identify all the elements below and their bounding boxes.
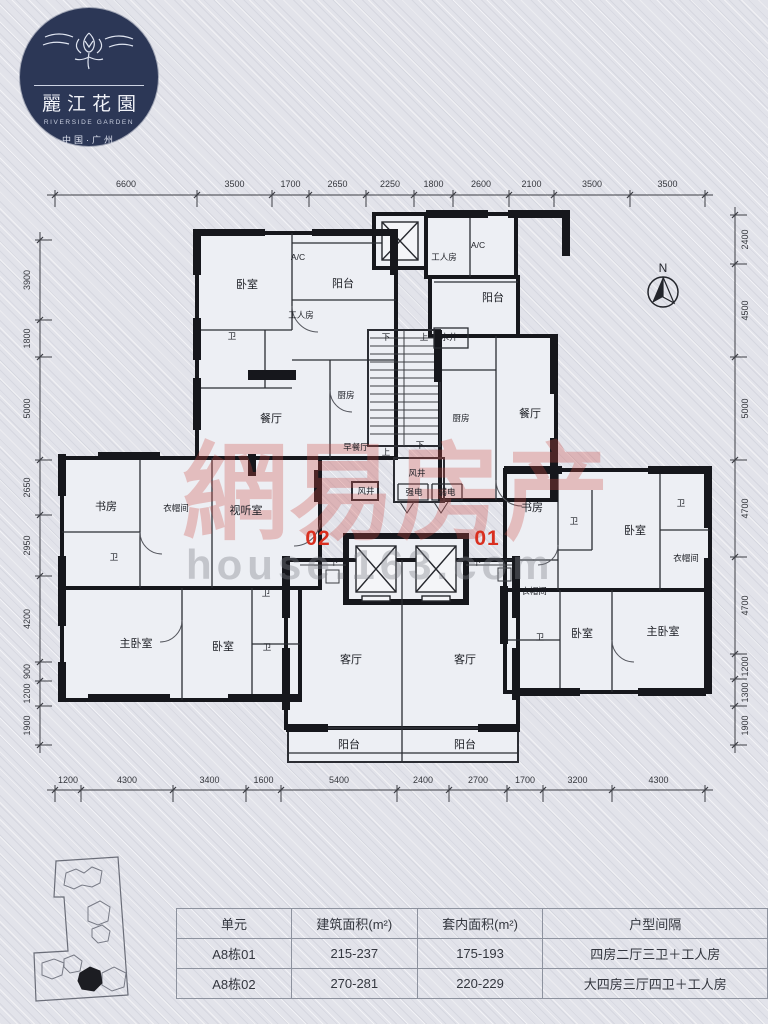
dimension-value: 2250 <box>380 179 400 189</box>
compass-icon <box>648 277 678 307</box>
table-cell: 215-237 <box>291 939 417 969</box>
logo-title-cn: 麗江花園 <box>20 89 158 116</box>
room-label: 客厅 <box>340 651 362 667</box>
room-label: 卧室 <box>212 638 234 654</box>
dimension-value: 2400 <box>413 775 433 785</box>
room-label: 风井 <box>408 467 425 479</box>
dimension-value: 1300 <box>740 682 750 702</box>
room-label: 衣帽间 <box>521 585 547 597</box>
room-label: 主卧室 <box>120 635 153 651</box>
dimension-value: 900 <box>22 664 32 679</box>
room-label: 卫 <box>262 587 271 599</box>
table-cell: 220-229 <box>417 969 543 999</box>
room-label: 厨房 <box>337 389 354 401</box>
room-label: 上 <box>420 331 429 343</box>
room-label: 视听室 <box>230 502 263 518</box>
dimension-value: 1900 <box>22 715 32 735</box>
room-label: 阳台 <box>332 275 354 291</box>
room-label: 厨房 <box>452 412 469 424</box>
room-label: 工人房 <box>431 251 457 263</box>
dimension-value: 4200 <box>22 609 32 629</box>
room-label: 上 <box>382 446 391 458</box>
table-cell: A8栋01 <box>177 939 292 969</box>
dimension-value: 1600 <box>253 775 273 785</box>
room-label: 风井 <box>357 485 374 497</box>
dimension-value: 1800 <box>22 328 32 348</box>
room-label: 卫 <box>228 330 237 342</box>
room-label: 衣帽间 <box>163 502 189 514</box>
unit-number-label: 01 <box>474 527 499 551</box>
logo-flower-icon <box>39 18 139 80</box>
table-row: A8栋01215-237175-193四房二厅三卫＋工人房 <box>177 939 768 969</box>
site-plan-highlighted-building <box>78 967 102 991</box>
table-cell: 175-193 <box>417 939 543 969</box>
dimension-value: 1700 <box>280 179 300 189</box>
watermark-netease: 網易房产 <box>182 436 610 553</box>
room-label: 卫 <box>677 497 686 509</box>
dimension-value: 3500 <box>582 179 602 189</box>
table-header: 建筑面积(m²) <box>291 909 417 939</box>
dimension-value: 3900 <box>22 270 32 290</box>
table-header: 户型间隔 <box>543 909 768 939</box>
dimension-value: 1200 <box>740 656 750 676</box>
room-label: A/C <box>471 240 485 250</box>
room-label: 客厅 <box>454 651 476 667</box>
room-label: 卫 <box>536 631 545 643</box>
logo-subtitle: 中国·广州 <box>20 133 158 146</box>
dimension-value: 2100 <box>521 179 541 189</box>
dimension-value: 2700 <box>468 775 488 785</box>
room-label: 弱电 <box>438 486 455 498</box>
dimension-value: 1900 <box>740 715 750 735</box>
room-label: 水井 <box>440 331 457 343</box>
table-row: A8栋02270-281220-229大四房三厅四卫＋工人房 <box>177 969 768 999</box>
room-label: 卫 <box>110 551 119 563</box>
dimension-value: 2400 <box>740 229 750 249</box>
dimension-value: 2650 <box>22 477 32 497</box>
room-label: 卧室 <box>571 625 593 641</box>
dimension-value: 5400 <box>329 775 349 785</box>
table-cell: 大四房三厅四卫＋工人房 <box>543 969 768 999</box>
riverside-garden-logo: 麗江花園 RIVERSIDE GARDEN 中国·广州 <box>20 8 158 146</box>
dimension-value: 1700 <box>515 775 535 785</box>
dimension-value: 4700 <box>740 595 750 615</box>
room-label: 卫 <box>570 515 579 527</box>
table-cell: A8栋02 <box>177 969 292 999</box>
table-header: 套内面积(m²) <box>417 909 543 939</box>
room-label: 阳台 <box>454 736 476 752</box>
room-label: A/C <box>291 252 305 262</box>
room-label: 主卧室 <box>647 623 680 639</box>
room-label: 书房 <box>95 498 117 514</box>
room-label: 强电 <box>405 486 422 498</box>
room-label: 书房 <box>521 499 543 515</box>
room-label: 阳台 <box>338 736 360 752</box>
logo-divider <box>34 85 144 86</box>
dimension-value: 4700 <box>740 498 750 518</box>
dimension-value: 5000 <box>22 398 32 418</box>
room-label: 餐厅 <box>519 405 541 421</box>
scanned-floorplan-page: 6600350017002650225018002600210035003500… <box>0 0 768 1024</box>
dimension-value: 5000 <box>740 398 750 418</box>
room-label: 餐厅 <box>260 410 282 426</box>
room-label: 工人房 <box>288 309 314 321</box>
dimension-value: 2600 <box>471 179 491 189</box>
unit-number-label: 02 <box>305 527 330 551</box>
room-label: 阳台 <box>482 289 504 305</box>
dimension-value: 2650 <box>327 179 347 189</box>
dimension-value: 1200 <box>22 683 32 703</box>
unit-spec-table: 单元建筑面积(m²)套内面积(m²)户型间隔 A8栋01215-237175-1… <box>176 908 768 999</box>
dimension-value: 3400 <box>199 775 219 785</box>
dimension-value: 3500 <box>657 179 677 189</box>
room-label: 衣帽间 <box>673 552 699 564</box>
room-label: 下 <box>330 556 339 568</box>
dimension-value: 4300 <box>648 775 668 785</box>
table-header: 单元 <box>177 909 292 939</box>
dimension-value: 6600 <box>116 179 136 189</box>
dimension-value: 1800 <box>423 179 443 189</box>
room-label: 下 <box>382 331 391 343</box>
compass-north-label: N <box>659 261 668 275</box>
dimension-value: 3200 <box>567 775 587 785</box>
room-label: 下 <box>473 556 482 568</box>
room-label: 卧室 <box>624 522 646 538</box>
room-label: 早餐厅 <box>343 441 369 453</box>
room-label: 卧室 <box>236 276 258 292</box>
logo-title-en: RIVERSIDE GARDEN <box>20 119 158 126</box>
room-label: 下 <box>416 439 425 451</box>
room-label: 卫 <box>263 641 272 653</box>
dimension-value: 4300 <box>117 775 137 785</box>
table-cell: 四房二厅三卫＋工人房 <box>543 939 768 969</box>
site-plan <box>28 855 178 1020</box>
dimension-value: 4500 <box>740 300 750 320</box>
dimension-value: 1200 <box>58 775 78 785</box>
dimension-value: 2950 <box>22 535 32 555</box>
dimension-value: 3500 <box>224 179 244 189</box>
table-cell: 270-281 <box>291 969 417 999</box>
